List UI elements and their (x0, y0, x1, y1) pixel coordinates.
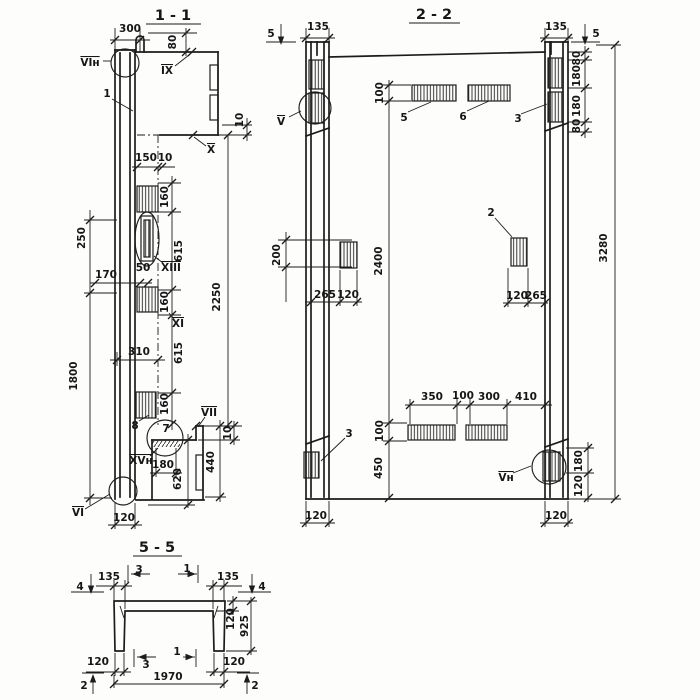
dim-label: 450 (373, 457, 385, 479)
detail-mark: VII (201, 407, 217, 419)
dim-label: 135 (217, 571, 239, 583)
dim-label: 135 (307, 21, 329, 33)
section-cut-label: 2 (80, 680, 87, 692)
dim-label: 200 (271, 244, 283, 266)
part-number: 3 (514, 113, 521, 125)
section-cut-label: 3 (135, 564, 142, 576)
embedded-plate (309, 93, 324, 123)
dim-label: 100 (452, 390, 474, 402)
dim-label: 925 (239, 615, 251, 637)
dim-label: 300 (119, 23, 141, 35)
dim-label: 170 (95, 269, 117, 281)
embedded-plate (137, 186, 158, 212)
engineering-drawing: 1 - 1 (0, 0, 700, 700)
dim-label: 120 (337, 289, 359, 301)
section-cut-label: 1 (183, 563, 190, 575)
embedded-plate (304, 452, 319, 478)
dim-label: 160 (159, 186, 171, 208)
dim-label: 120 (87, 656, 109, 668)
dim-label: 1970 (153, 671, 182, 683)
part-number: 6 (459, 111, 466, 123)
detail-mark: XVн (129, 455, 152, 467)
dim-label: 120 (113, 512, 135, 524)
dim-label: 350 (421, 391, 443, 403)
dim-label: 150 (135, 152, 157, 164)
dim-label: 310 (128, 346, 150, 358)
embedded-plate (548, 92, 563, 122)
dim-label: 160 (159, 291, 171, 313)
dim-label: 135 (98, 571, 120, 583)
section-5-5: 5 - 5 (71, 540, 271, 694)
part-number: 3 (345, 428, 352, 440)
dim-label: 2250 (211, 282, 223, 311)
edge-plate (196, 455, 203, 490)
part-number: 8 (131, 420, 138, 432)
section-title-1-1: 1 - 1 (155, 8, 191, 24)
dim-label: 620 (172, 468, 184, 490)
dim-label: 80 (571, 119, 583, 134)
anchor-plate (144, 220, 150, 257)
dim-label: 250 (76, 227, 88, 249)
embedded-plate-5 (412, 85, 456, 101)
detail-circle-vi (109, 477, 137, 505)
dim-label: 3280 (598, 233, 610, 262)
dim-label: 615 (173, 240, 185, 262)
dim-label: 120 (545, 510, 567, 522)
edge-plate (210, 65, 218, 90)
section-title-2-2: 2 - 2 (416, 7, 452, 23)
edge-plate (210, 95, 218, 120)
embedded-plate (548, 58, 563, 88)
detail-mark: X (207, 144, 215, 156)
dim-label: 180 (571, 65, 583, 87)
panel-top-edge (329, 52, 545, 57)
detail-mark: XI (172, 318, 184, 330)
dim-label: 120 (573, 475, 585, 497)
section-2-2: 2 - 2 (266, 7, 621, 527)
dim-label: 10 (158, 152, 173, 164)
dim-label: 120 (225, 608, 237, 630)
part-number: 2 (487, 207, 494, 219)
section-cut-label: 4 (258, 581, 265, 593)
dim-label: 265 (314, 289, 336, 301)
dim-label: 80 (571, 51, 583, 66)
weld-strip (152, 441, 180, 447)
section-cut-label: 4 (76, 581, 83, 593)
embedded-plate-6 (468, 85, 510, 101)
dim-label: 180 (152, 459, 174, 471)
part-number: 1 (103, 88, 110, 100)
embedded-plate-2 (511, 238, 527, 266)
dim-label: 615 (173, 342, 185, 364)
section-cut-label: 1 (173, 646, 180, 658)
dim-label: 10 (222, 426, 234, 441)
detail-mark: Vн (498, 472, 513, 484)
section-cut-label: 5 (592, 28, 599, 40)
drawing-sheet: 1 - 1 (0, 0, 700, 700)
dim-label: 100 (374, 420, 386, 442)
section-1-1: 1 - 1 (68, 8, 252, 529)
embedded-plates (304, 58, 563, 481)
section-title-5-5: 5 - 5 (139, 540, 175, 556)
dim-label: 265 (525, 290, 547, 302)
dim-label: 440 (205, 451, 217, 473)
detail-mark: VI (72, 507, 84, 519)
dim-label: 80 (167, 35, 179, 50)
chamfer-mark (214, 606, 218, 618)
chamfer-mark (120, 606, 124, 618)
embedded-plate (466, 425, 507, 440)
section-cut-label: 2 (251, 680, 258, 692)
section-cut-label: 3 (142, 659, 149, 671)
dim-label: 160 (159, 393, 171, 415)
detail-mark: VIн (80, 57, 99, 69)
part-number: 5 (400, 112, 407, 124)
dim-label: 135 (545, 21, 567, 33)
detail-mark: IX (161, 65, 173, 77)
dim-label: 2400 (373, 246, 385, 275)
dim-label: 10 (234, 113, 246, 128)
detail-mark: V (277, 116, 286, 128)
detail-mark: XIII (161, 262, 181, 274)
dim-label: 100 (374, 82, 386, 104)
part-number: 7 (162, 423, 169, 435)
dim-label: 50 (136, 262, 151, 274)
dim-label: 180 (573, 450, 585, 472)
dim-label: 120 (223, 656, 245, 668)
embedded-plate (137, 287, 158, 312)
embedded-plate (408, 425, 455, 440)
embedded-plate (543, 452, 560, 481)
dim-label: 120 (305, 510, 327, 522)
embedded-plate (309, 60, 324, 89)
dim-label: 410 (515, 391, 537, 403)
dim-label: 300 (478, 391, 500, 403)
channel-outline (114, 601, 225, 651)
embedded-plate (136, 392, 156, 418)
section-cut-label: 5 (267, 28, 274, 40)
dim-label: 1800 (68, 361, 80, 390)
embedded-plate (340, 242, 357, 268)
dim-label: 180 (571, 95, 583, 117)
